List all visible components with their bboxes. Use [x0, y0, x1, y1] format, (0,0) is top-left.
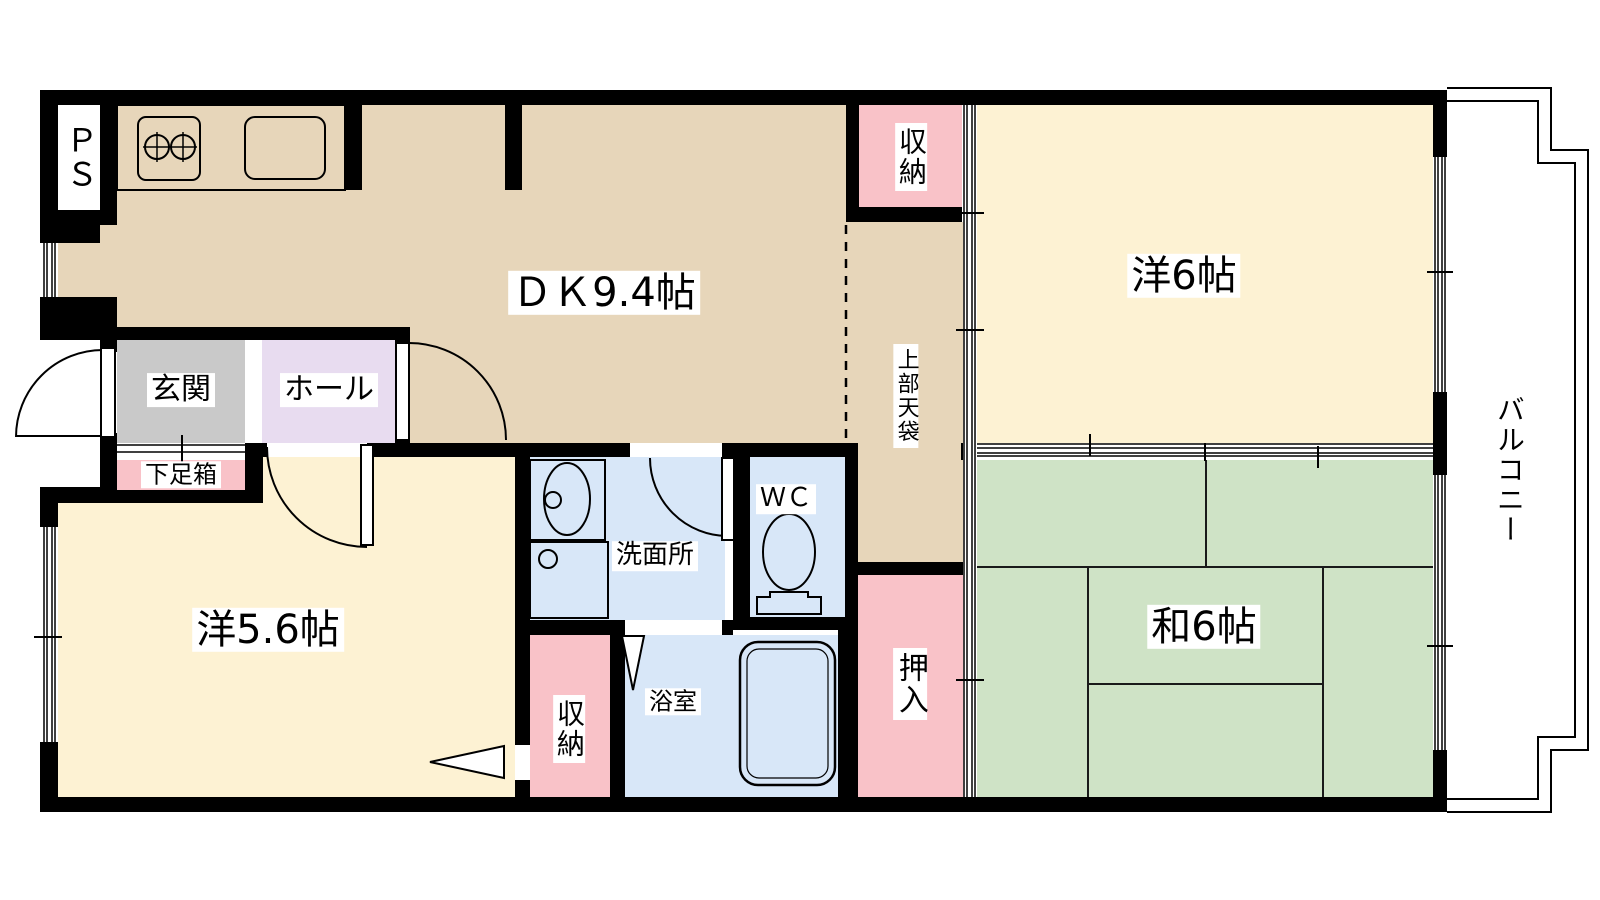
room-label-upper-tenbukuro: 上部天袋	[893, 344, 918, 448]
room-label-ps: ＰＳ	[61, 120, 97, 196]
kitchen-counter	[117, 105, 345, 190]
window-west56	[34, 527, 62, 742]
floor-plan-graphics	[0, 0, 1600, 900]
room-label-balcony: バルコニー	[1493, 391, 1525, 549]
room-label-oshiire: 押入	[893, 648, 927, 720]
room-label-shoe-box: 下足箱	[141, 461, 221, 488]
room-label-western6: 洋6帖	[1127, 254, 1240, 298]
room-label-japanese6: 和6帖	[1147, 605, 1260, 649]
room-label-hall: ホール	[280, 373, 378, 407]
entrance-hall-opening	[245, 340, 262, 443]
room-label-washroom: 洗面所	[612, 541, 698, 571]
window-alcove	[41, 243, 57, 297]
room-label-bathroom: 浴室	[645, 688, 701, 715]
bathroom-floor	[625, 635, 838, 797]
closet-door-opening	[515, 745, 530, 780]
room-label-dk: ＤＫ9.4帖	[508, 271, 700, 315]
washroom-floor	[530, 457, 725, 620]
room-label-entrance: 玄関	[147, 373, 215, 407]
room-label-storage-bottom: 収納	[553, 695, 585, 763]
floor-plan: ＰＳ ＤＫ9.4帖 収納 上部天袋 洋6帖 バルコニー 玄関 ホール 下足箱 洋…	[0, 0, 1600, 900]
room-label-storage-top: 収納	[895, 123, 927, 191]
room-label-western56: 洋5.6帖	[192, 608, 344, 652]
room-label-wc: ＷＣ	[756, 484, 816, 514]
